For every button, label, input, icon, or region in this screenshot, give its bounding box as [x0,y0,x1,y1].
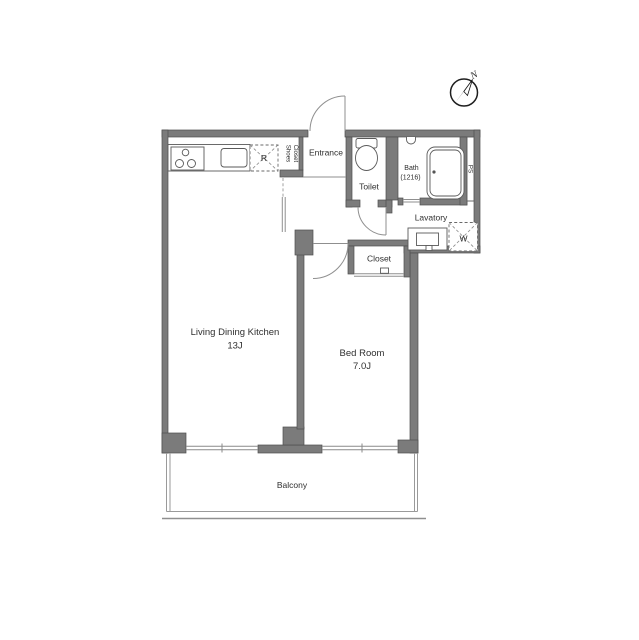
shoes-closet-label-line1: Shoes [285,145,292,163]
wall-closet-top [348,240,410,246]
wall-closet-left [348,246,354,274]
wall-top-right [345,130,480,137]
washer-label: W [459,234,467,244]
entrance-label: Entrance [309,148,343,158]
wall-left [162,130,168,453]
stove-burner-icon [182,149,189,156]
floor-plan-page: PS R Shoes Closet Entrance Toilet [0,0,639,640]
compass: N [451,68,481,106]
compass-circle [451,79,478,106]
bedroom-size-label: 7.0J [353,361,371,372]
stove-burner-icon [176,160,184,168]
kitchen-sink [221,149,247,168]
wall-bath-bottom-left-stub [398,198,403,205]
wall-hall-corner-block [295,230,313,255]
bathtub-drain [432,170,435,173]
toilet-door-swing-arc [358,207,386,235]
closet-label: Closet [367,254,392,264]
shoes-closet: Shoes Closet [285,145,300,163]
lavatory-faucet [426,246,432,251]
wall-right-bottom-stub [398,440,418,453]
wall-toilet-bath-divider [386,137,398,200]
stove-burner-icon [188,160,196,168]
floor-plan-drawing: PS R Shoes Closet Entrance Toilet [0,0,639,640]
bath-label: Bath [404,165,419,172]
bath-size-label: (1216) [400,175,420,182]
wall-closet-right [404,246,410,277]
refrigerator-label: R [261,153,267,163]
balcony-label: Balcony [277,480,308,490]
ldk-size-label: 13J [227,341,243,352]
pipe-space-label: PS [467,165,474,173]
wall-top-left [162,130,308,137]
toilet-label: Toilet [359,182,379,192]
entrance-door-swing-arc [310,96,345,131]
toilet-bowl [356,146,378,171]
bedroom-label: Bed Room [340,348,385,359]
ldk-label: Living Dining Kitchen [191,327,280,338]
wall-bedroom-right [410,253,418,453]
pipe-space: PS [467,137,475,201]
lavatory-sink [417,233,439,246]
lavatory-label: Lavatory [415,213,448,223]
bath-counter-basin [407,137,416,144]
wall-hall-lavatory-stub [386,200,392,213]
wall-mid-riser [283,427,304,445]
wall-left-bottom-stub [162,433,186,453]
wall-mid-bottom-stub [258,445,322,453]
room-living-dining-kitchen [168,137,297,445]
closet-door-handle [381,268,389,273]
wall-ldk-bedroom-divider [297,253,304,429]
wall-toilet-bottom-left [346,200,360,207]
shoes-closet-label-line2: Closet [292,145,299,163]
wall-toilet-left [346,137,352,207]
kitchen: R [168,145,278,172]
bedroom-door [313,244,348,279]
wall-shoes-closet-bottom [280,170,303,177]
bedroom-door-swing-arc [313,244,348,279]
